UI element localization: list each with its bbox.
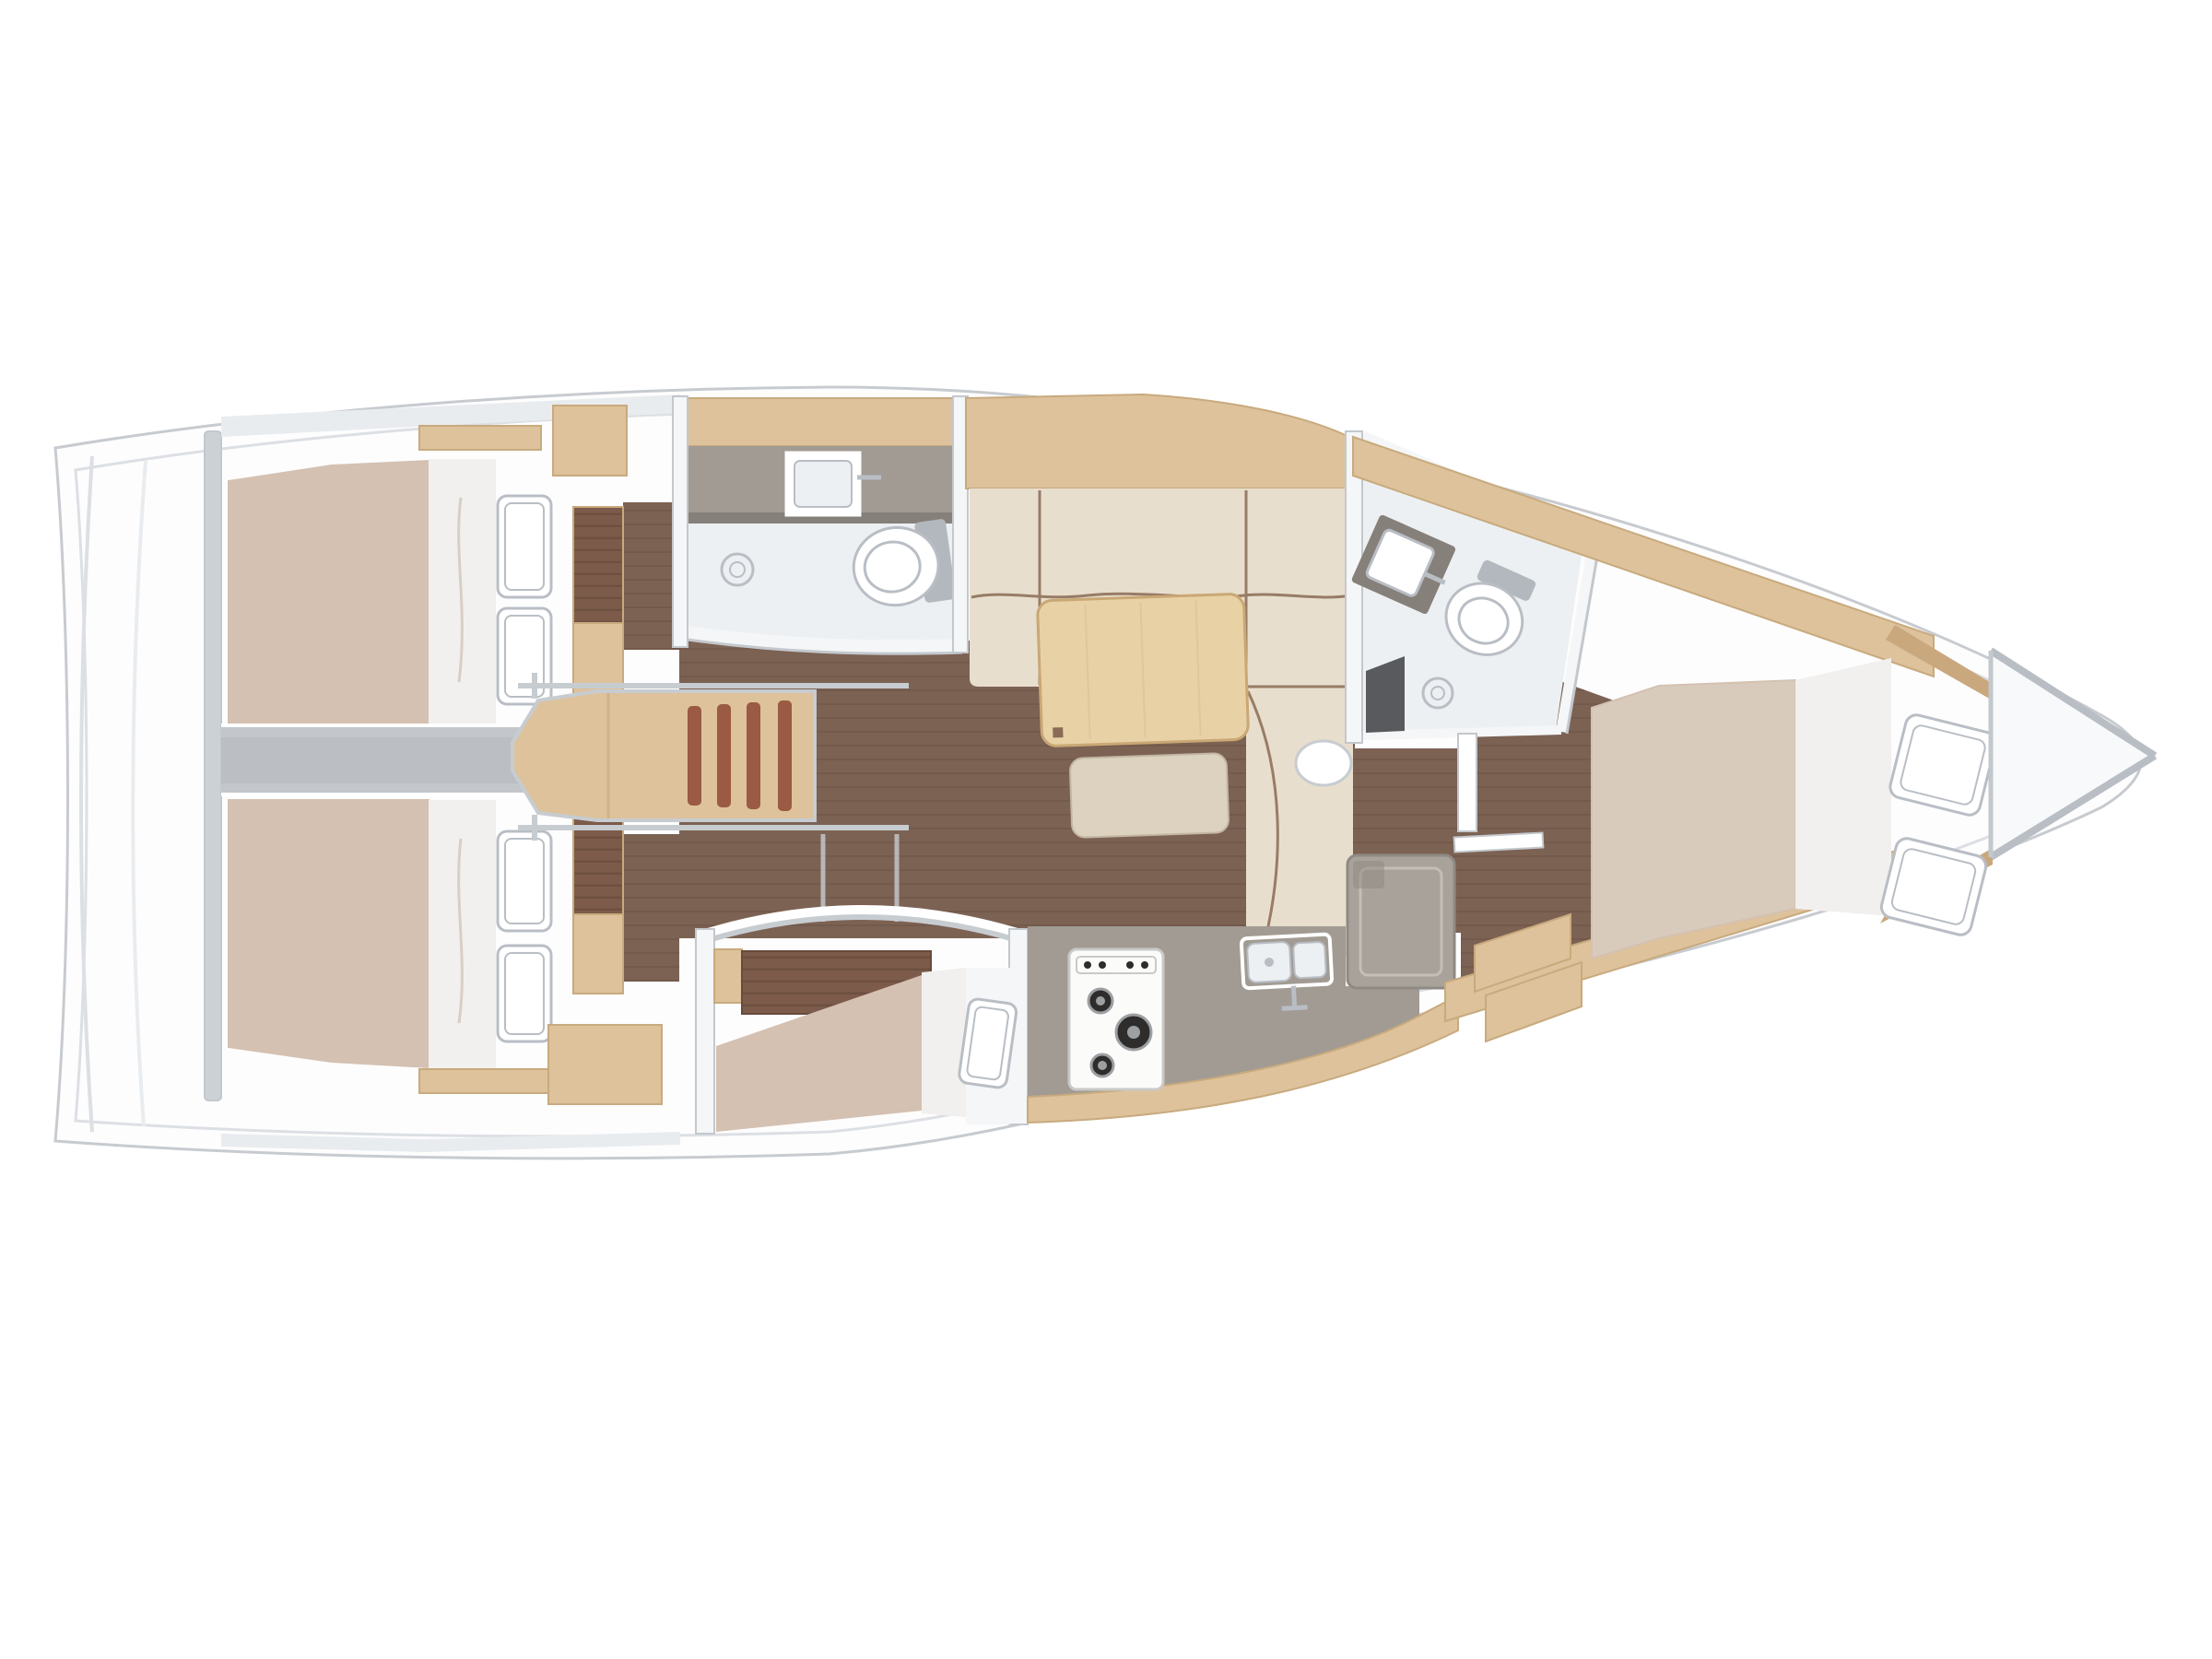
mid-cabin-pillow: [959, 998, 1018, 1088]
aft-cabin-port-doorway-floor: [623, 502, 679, 650]
step-tread-2: [717, 704, 731, 807]
table-knob: [1053, 727, 1063, 737]
head-aft-wall-left: [673, 396, 688, 647]
mid-cabin-berth-bedding: [922, 968, 966, 1117]
saloon-bench: [1070, 753, 1230, 838]
mid-cabin-jamb-left: [696, 929, 714, 1134]
galley-refrigerator-vent: [1353, 861, 1384, 888]
engine-band-core: [221, 737, 560, 783]
aft-stbd-berth-bedding: [429, 800, 496, 1069]
stove-knob-4: [1141, 961, 1148, 969]
fwd-berth-bedding: [1795, 658, 1891, 916]
head-aft-washbasin-bowl: [794, 461, 852, 507]
stove-knob-1: [1084, 961, 1091, 969]
aft-port-berth-mattress: [229, 461, 429, 728]
galley-sink-basin-right: [1293, 942, 1326, 979]
transom-bulkhead: [205, 431, 221, 1100]
saloon-pouf: [1296, 741, 1351, 785]
galley-faucet-bar: [1282, 1007, 1308, 1008]
mid-cabin-locker-wood: [714, 949, 742, 1003]
head-aft: [673, 396, 968, 653]
burner-small-2-cap: [1098, 1061, 1107, 1070]
saloon-table-group: [1037, 594, 1248, 747]
aft-port-locker-top: [553, 406, 627, 476]
mid-cabin-pillow-group: [959, 998, 1018, 1088]
step-tread-1: [688, 706, 701, 806]
burner-large-cap: [1127, 1026, 1140, 1039]
aft-port-shelf: [419, 426, 541, 450]
engine-compartment: [221, 725, 560, 794]
galley-stove: [1069, 949, 1163, 1089]
aft-stbd-berth-mattress: [229, 800, 429, 1067]
burner-small-1-cap: [1096, 996, 1105, 1006]
head-aft-locker-band: [686, 398, 955, 446]
galley-faucet-stem: [1293, 986, 1294, 1008]
aft-stbd-locker-bottom: [548, 1025, 662, 1104]
step-tread-4: [778, 700, 792, 811]
companionway-platform: [512, 691, 815, 820]
aft-stbd-locker-front: [573, 914, 623, 994]
aft-port-wardrobe-tambour: [573, 507, 623, 623]
aft-stbd-shelf: [419, 1069, 548, 1093]
head-fwd-door: [1458, 734, 1477, 831]
stove-knob-3: [1126, 961, 1134, 969]
step-tread-3: [747, 702, 760, 809]
stove-knob-2: [1099, 961, 1106, 969]
aft-cabin-stbd-doorway-floor: [623, 834, 679, 982]
boat-floor-plan: [0, 0, 2212, 1659]
